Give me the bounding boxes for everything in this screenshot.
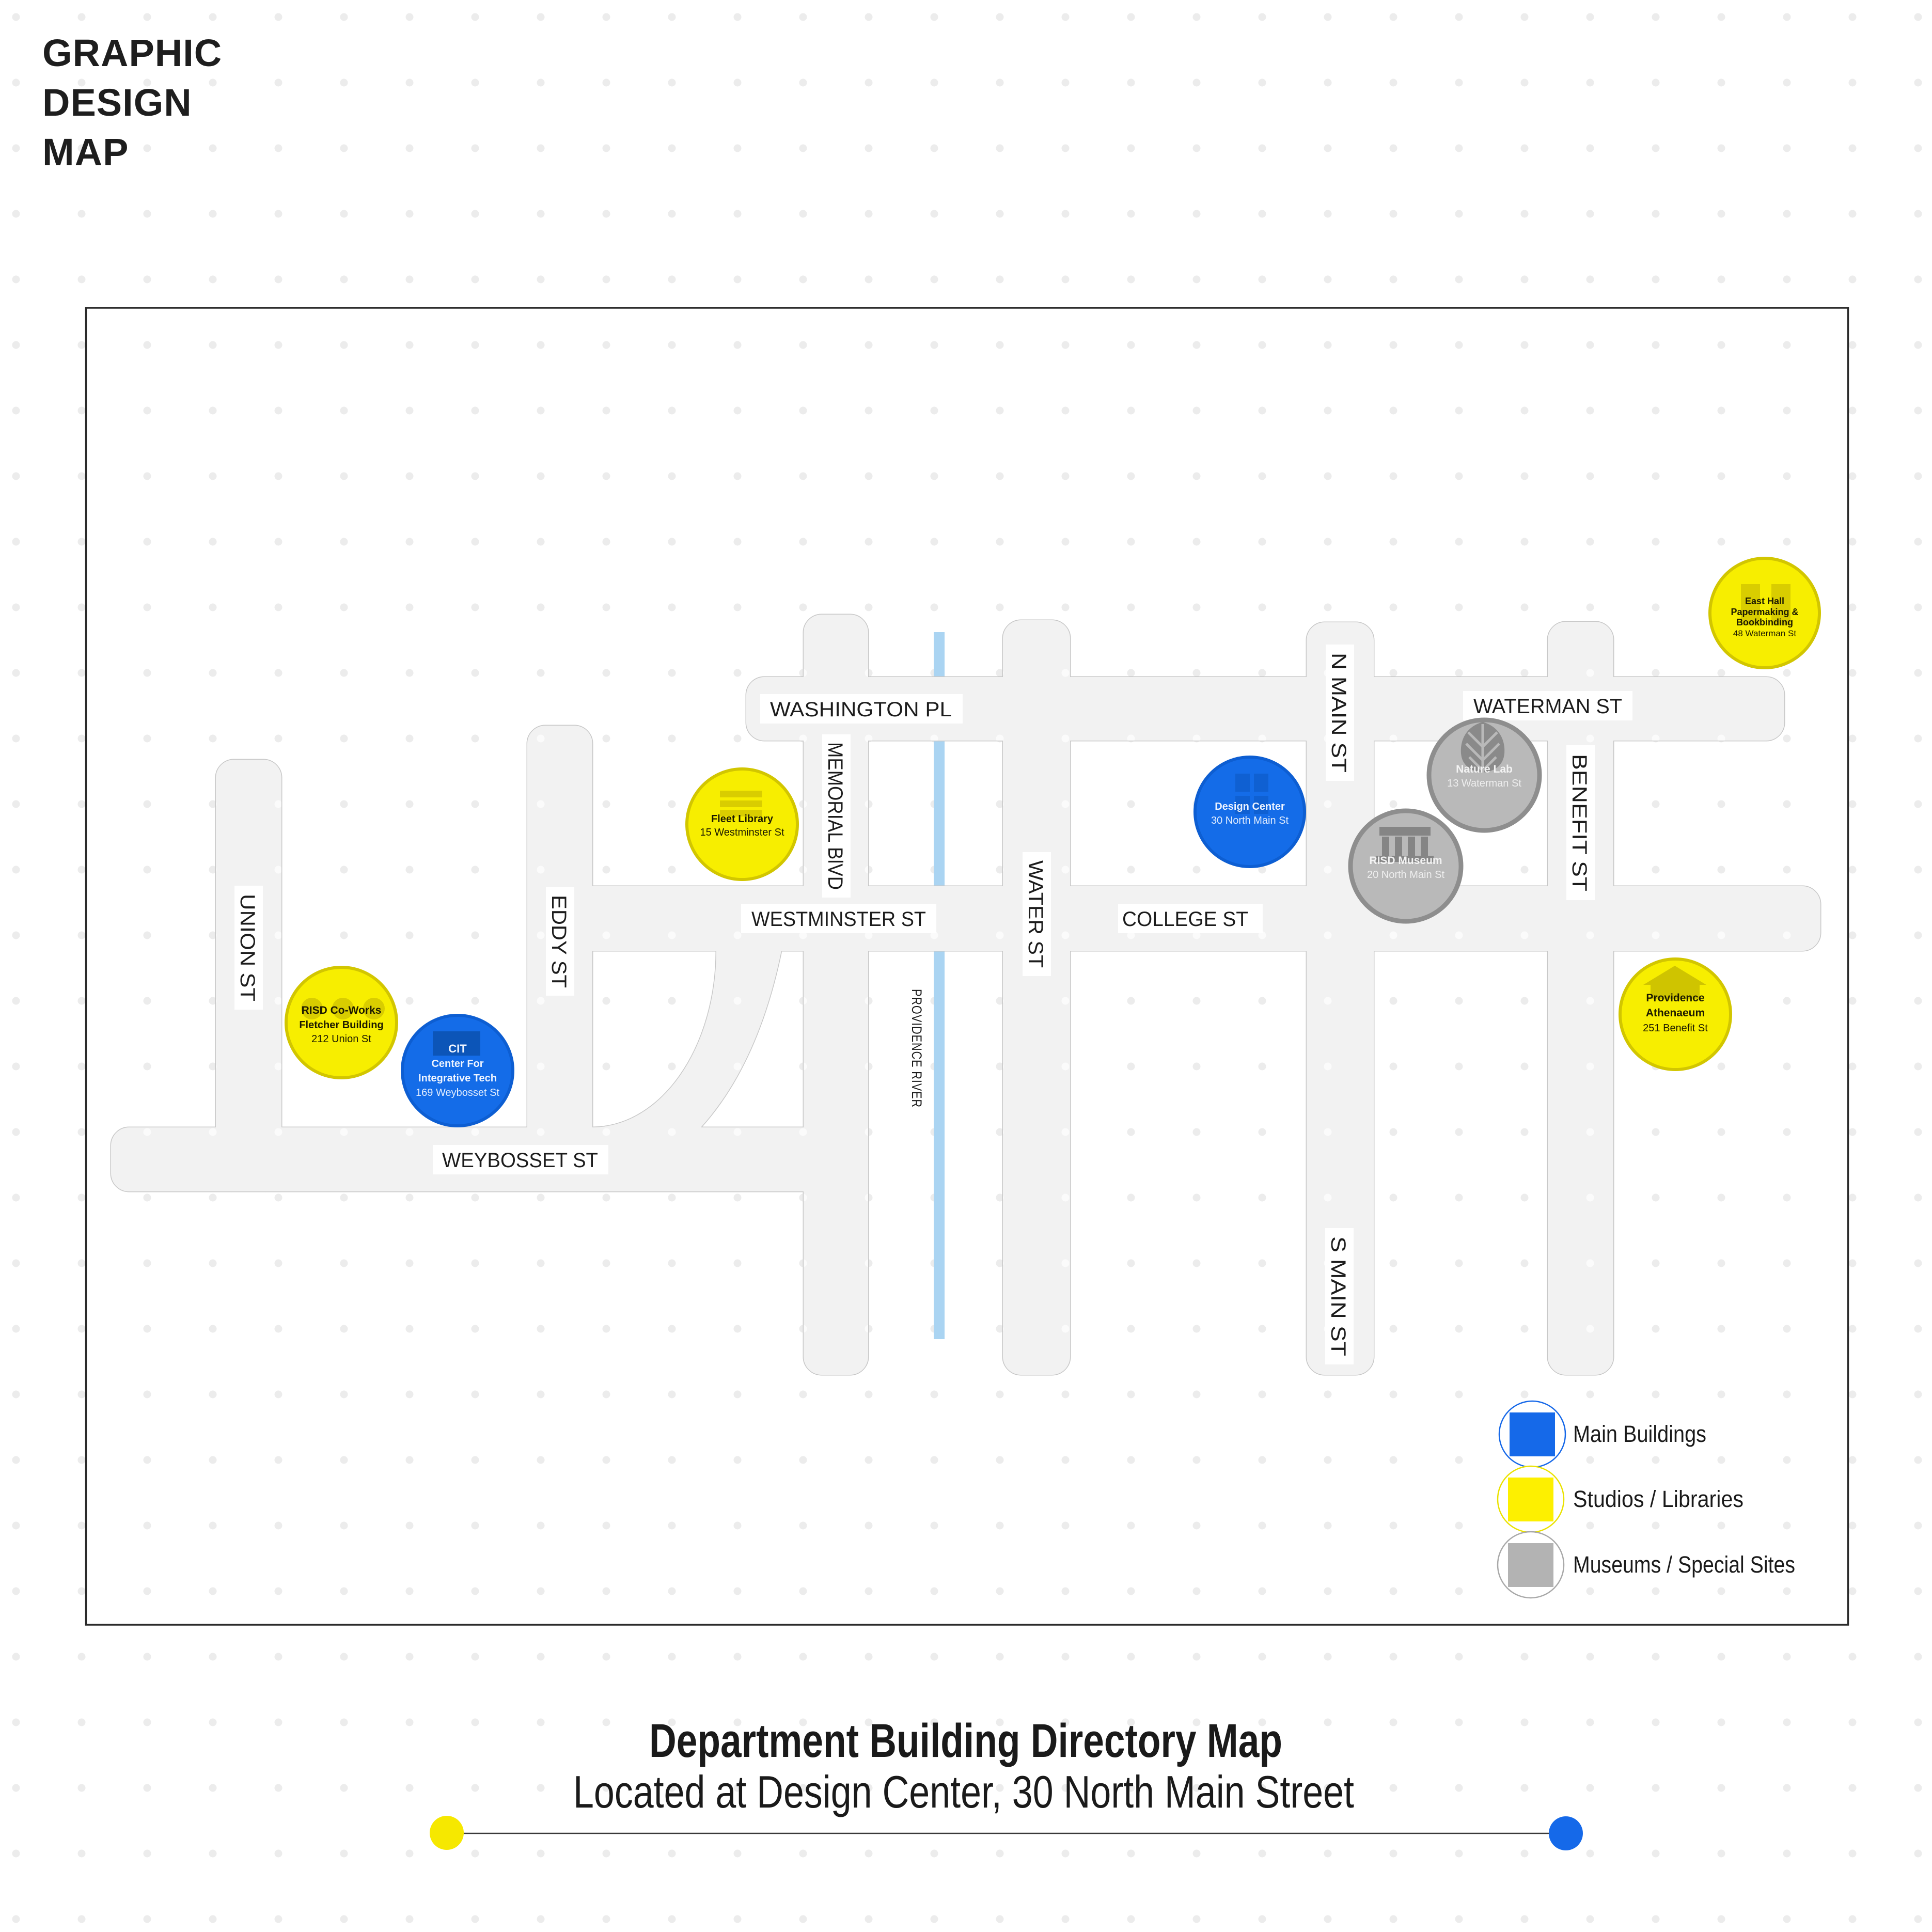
- svg-text:MAP: MAP: [42, 131, 129, 174]
- svg-text:Studios / Libraries: Studios / Libraries: [1573, 1486, 1743, 1512]
- svg-text:Fleet Library: Fleet Library: [711, 813, 774, 825]
- svg-text:RISD Museum: RISD Museum: [1369, 855, 1442, 867]
- svg-text:212 Union St: 212 Union St: [311, 1033, 371, 1045]
- svg-text:WATER ST: WATER ST: [1024, 860, 1047, 968]
- svg-text:Nature Lab: Nature Lab: [1456, 763, 1513, 775]
- svg-text:Papermaking &: Papermaking &: [1731, 607, 1798, 617]
- svg-text:WESTMINSTER ST: WESTMINSTER ST: [751, 908, 926, 931]
- svg-text:RISD Co-Works: RISD Co-Works: [302, 1004, 382, 1016]
- svg-text:Department Building Directory: Department Building Directory Map: [649, 1715, 1282, 1767]
- svg-text:Fletcher Building: Fletcher Building: [299, 1019, 383, 1031]
- svg-text:Center For: Center For: [431, 1058, 483, 1070]
- svg-text:Providence: Providence: [1646, 992, 1704, 1004]
- svg-text:Bookbinding: Bookbinding: [1736, 617, 1793, 627]
- svg-text:BENEFIT ST: BENEFIT ST: [1568, 754, 1591, 891]
- svg-text:20 North Main St: 20 North Main St: [1367, 869, 1445, 881]
- svg-text:Integrative Tech: Integrative Tech: [418, 1073, 497, 1084]
- svg-text:15 Westminster St: 15 Westminster St: [700, 827, 784, 838]
- svg-text:169 Weybosset St: 169 Weybosset St: [416, 1087, 499, 1098]
- svg-text:Design Center: Design Center: [1215, 801, 1285, 812]
- svg-text:EDDY ST: EDDY ST: [547, 895, 570, 988]
- svg-text:MEMORIAL BlVD: MEMORIAL BlVD: [824, 742, 846, 890]
- svg-text:Athenaeum: Athenaeum: [1646, 1007, 1705, 1019]
- svg-text:S MAIN ST: S MAIN ST: [1327, 1236, 1349, 1356]
- svg-text:N MAIN ST: N MAIN ST: [1327, 653, 1350, 773]
- svg-text:DESIGN: DESIGN: [42, 81, 192, 124]
- svg-text:13 Waterman St: 13 Waterman St: [1447, 778, 1521, 789]
- svg-text:GRAPHIC: GRAPHIC: [42, 32, 222, 74]
- svg-text:East Hall: East Hall: [1745, 596, 1784, 606]
- svg-text:30 North Main St: 30 North Main St: [1211, 815, 1289, 826]
- svg-text:COLLEGE ST: COLLEGE ST: [1122, 908, 1248, 931]
- svg-text:251 Benefit St: 251 Benefit St: [1643, 1023, 1708, 1034]
- svg-text:Located at Design Center, 30 N: Located at Design Center, 30 North Main …: [573, 1766, 1354, 1817]
- svg-text:UNION ST: UNION ST: [236, 894, 259, 1001]
- svg-text:WASHINGTON PL: WASHINGTON PL: [770, 698, 952, 721]
- svg-text:WATERMAN ST: WATERMAN ST: [1473, 695, 1622, 718]
- svg-text:CIT: CIT: [448, 1042, 467, 1055]
- svg-text:Museums / Special Sites: Museums / Special Sites: [1573, 1551, 1795, 1578]
- svg-text:48 Waterman St: 48 Waterman St: [1733, 629, 1796, 638]
- svg-text:Main Buildings: Main Buildings: [1573, 1421, 1706, 1447]
- svg-text:WEYBOSSET ST: WEYBOSSET ST: [442, 1149, 598, 1172]
- svg-text:PROVIDENCE RIVER: PROVIDENCE RIVER: [909, 989, 924, 1108]
